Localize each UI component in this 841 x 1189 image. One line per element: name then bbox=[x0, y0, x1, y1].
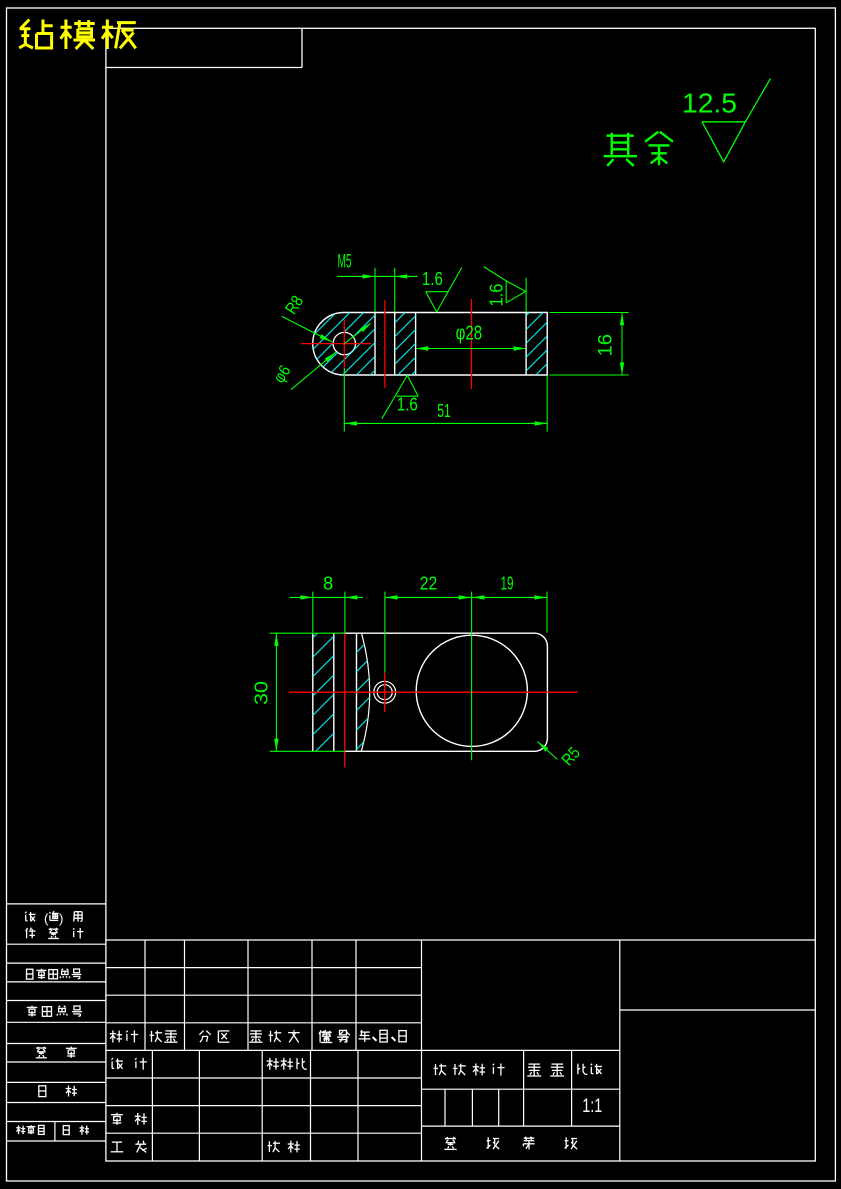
svg-text:12.5: 12.5 bbox=[682, 88, 737, 119]
svg-text:φ28: φ28 bbox=[456, 323, 483, 345]
svg-text:8: 8 bbox=[323, 573, 333, 594]
svg-text:16: 16 bbox=[596, 334, 617, 357]
svg-text:M5: M5 bbox=[338, 252, 352, 273]
svg-text:(: ( bbox=[44, 911, 49, 926]
svg-text:1:1: 1:1 bbox=[582, 1096, 602, 1117]
svg-text:22: 22 bbox=[420, 573, 438, 594]
svg-text:30: 30 bbox=[251, 681, 272, 705]
svg-text:1.6: 1.6 bbox=[422, 268, 443, 289]
svg-text:19: 19 bbox=[501, 573, 514, 594]
svg-text:51: 51 bbox=[437, 400, 451, 421]
svg-text:1.6: 1.6 bbox=[486, 284, 507, 307]
svg-text:): ) bbox=[59, 911, 63, 926]
svg-text:1.6: 1.6 bbox=[397, 394, 418, 415]
